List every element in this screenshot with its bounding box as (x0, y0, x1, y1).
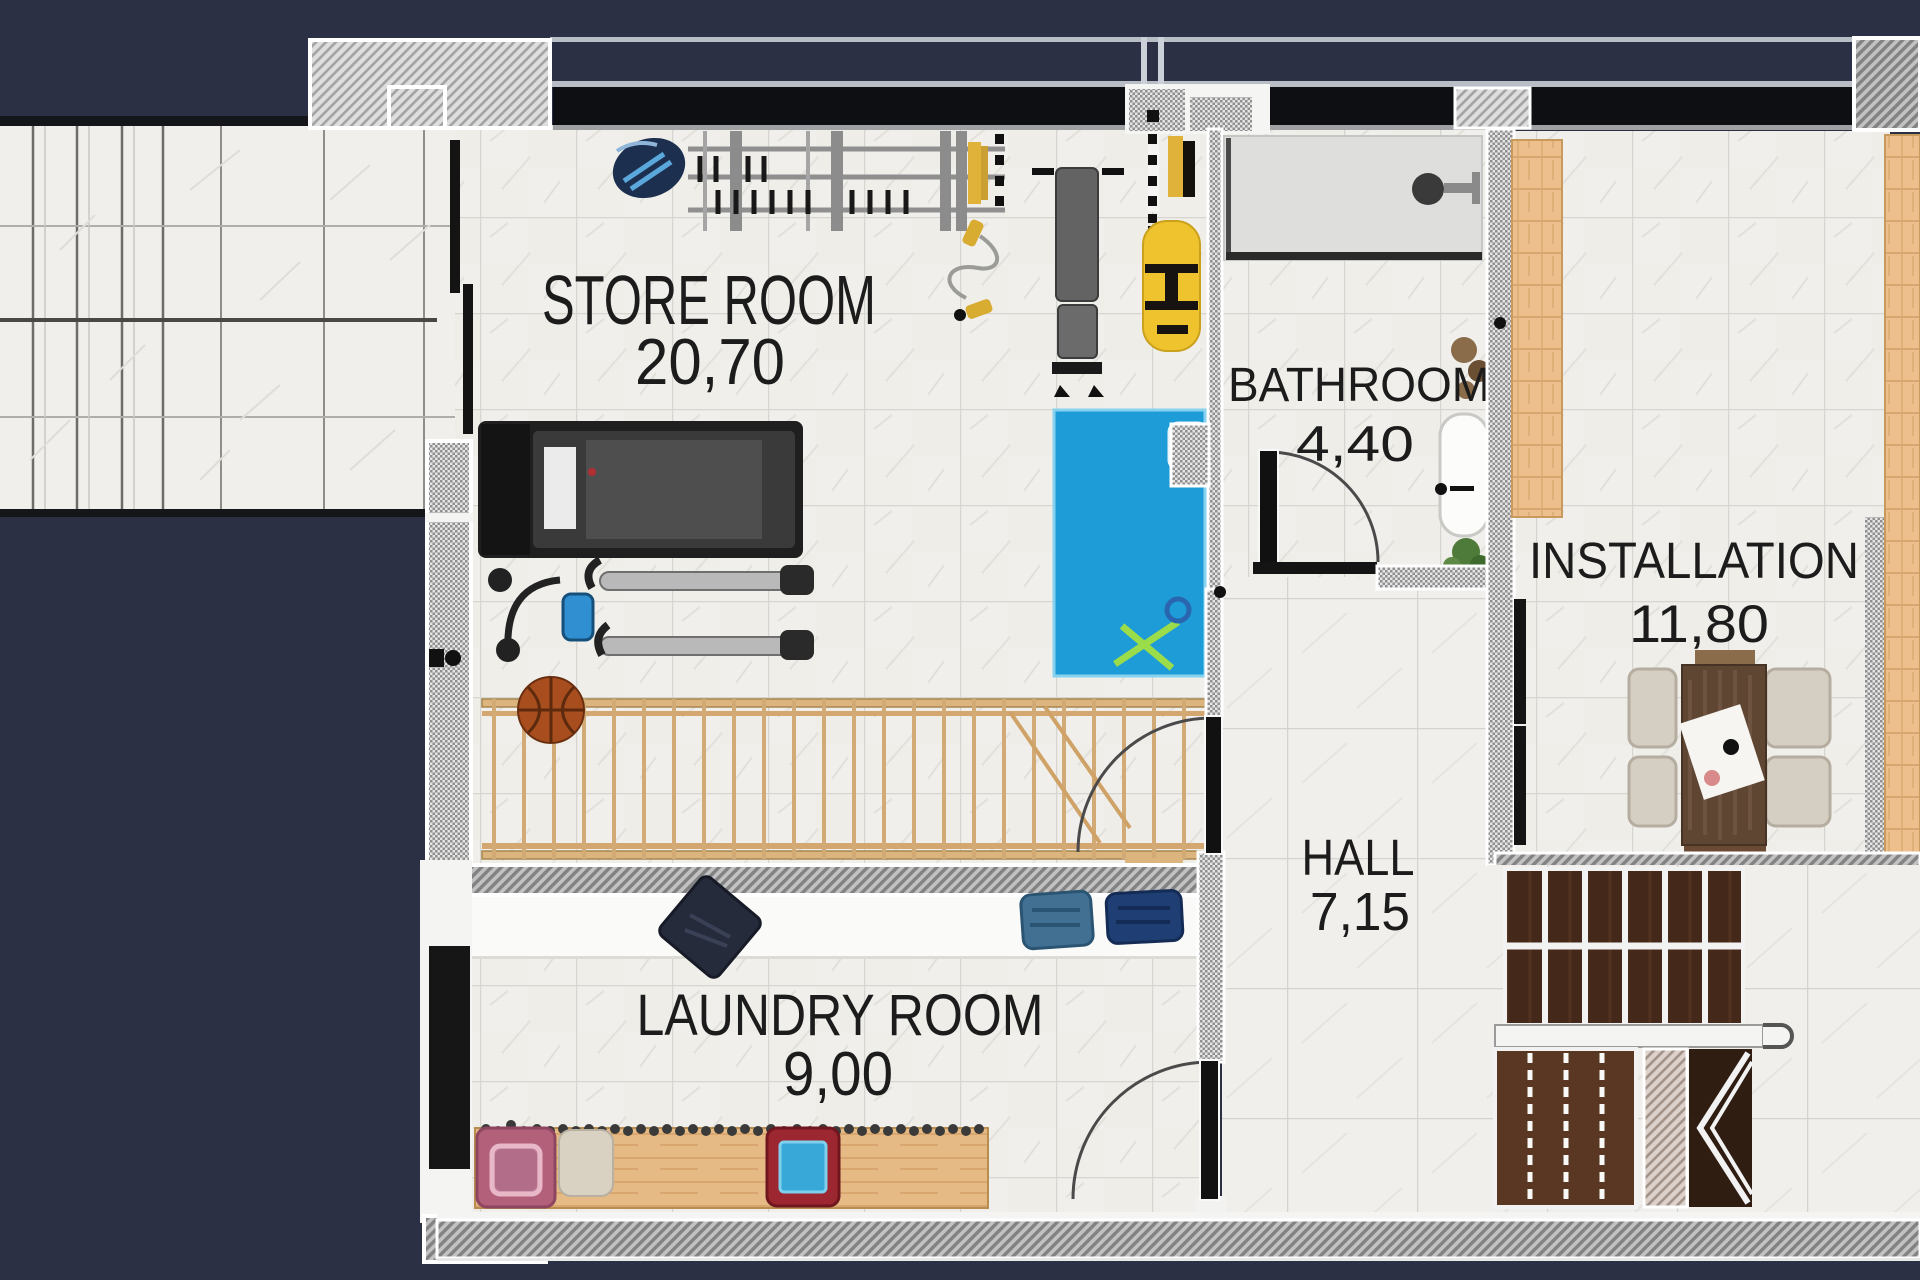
svg-text:9,00: 9,00 (783, 1040, 893, 1109)
svg-text:HALL: HALL (1302, 829, 1415, 886)
svg-text:20,70: 20,70 (635, 325, 785, 398)
svg-text:INSTALLATION: INSTALLATION (1529, 532, 1859, 589)
svg-text:LAUNDRY ROOM: LAUNDRY ROOM (637, 983, 1044, 1048)
svg-text:BATHROOM: BATHROOM (1228, 359, 1490, 412)
svg-text:7,15: 7,15 (1310, 882, 1410, 942)
svg-text:11,80: 11,80 (1629, 595, 1769, 654)
svg-text:4,40: 4,40 (1296, 416, 1414, 472)
